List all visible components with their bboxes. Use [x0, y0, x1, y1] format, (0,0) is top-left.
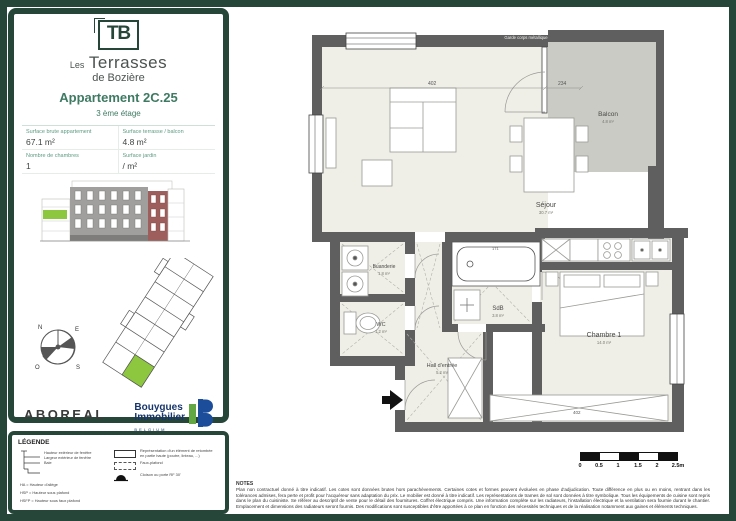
- field-value: / m²: [123, 161, 212, 171]
- legend-window-diagram: Hauteur extérieur de fenêtre Largeur ext…: [18, 449, 114, 488]
- highlighted-unit-elevation: [43, 210, 67, 219]
- window-sejour-top: [346, 33, 416, 49]
- room-area-buanderie: 1.8 m²: [378, 271, 390, 276]
- room-label-sejour: Séjour: [536, 202, 557, 209]
- scale-tick: 2: [655, 463, 658, 469]
- room-label-buanderie: Buanderie: [373, 264, 396, 270]
- scale-segment: [600, 453, 619, 460]
- room-label-sdb: SdB: [492, 306, 503, 312]
- plan-sheet: TB Les Terrasses de Bozière Appartement …: [0, 0, 736, 521]
- tv-board: [326, 118, 336, 168]
- coffee-table: [362, 160, 392, 186]
- brand-subtitle: de Bozière: [14, 72, 223, 84]
- wardrobe: [490, 395, 668, 421]
- room-label-wc: WC: [376, 322, 385, 328]
- legend-beam-label: Représentation d'un élément de retombée …: [140, 449, 214, 458]
- field-value: 4.8 m²: [123, 137, 212, 147]
- balcony-glass-door: [542, 47, 547, 113]
- bouygues-line2: Immobilier: [134, 413, 185, 423]
- brand-les: Les: [70, 60, 85, 70]
- bouygues-logo: Bouygues Immobilier BELGIUM: [134, 399, 215, 435]
- field-value: 1: [26, 161, 114, 171]
- room-label-hall: Hall d'entrée: [427, 363, 458, 369]
- field-label: Surface terrasse / balcon: [123, 129, 212, 135]
- room-area-hall: 5.2 m²: [436, 370, 448, 375]
- legend-abbr-hsp: HSP = Hauteur sous plafond: [20, 489, 80, 497]
- room-area-wc: 1.2 m²: [375, 329, 387, 334]
- dim-wardrobe-width: 402: [573, 410, 581, 415]
- false-ceiling-symbol: [114, 462, 136, 470]
- field-chambres: Nombre de chambres 1: [22, 150, 119, 174]
- mini-maps: N E S O: [14, 258, 223, 396]
- legend-fire-door-label: Cloison ou porte RF 30': [140, 473, 181, 478]
- scale-segment: [658, 453, 677, 460]
- sofa: [390, 88, 456, 152]
- compass-rose: N E S O: [32, 320, 84, 372]
- entry-arrow-icon: [382, 390, 403, 410]
- room-label-chambre1: Chambre 1: [587, 332, 622, 339]
- scale-segment: [639, 453, 658, 460]
- stove: [598, 239, 630, 261]
- scale-tick: 1: [616, 463, 619, 469]
- scale-segment: [619, 453, 638, 460]
- window-sejour-left: [309, 115, 323, 173]
- scale-bar: 0 0.5 1 1.5 2 2.5m: [578, 452, 698, 472]
- scale-tick: 2.5m: [672, 463, 685, 469]
- compass-s: S: [76, 365, 80, 371]
- notes-block: NOTES Plan non contractuel donné à titre…: [236, 481, 710, 509]
- brand-block: TB Les Terrasses de Bozière: [14, 20, 223, 84]
- apartment-title: Appartement 2C.25: [14, 90, 223, 105]
- legend-bay: Baie: [44, 461, 92, 466]
- scale-tick: 0: [578, 463, 581, 469]
- balcony-railing: [548, 30, 664, 42]
- field-value: 67.1 m²: [26, 137, 114, 147]
- scale-segment: [581, 453, 600, 460]
- field-jardin: Surface jardin / m²: [119, 150, 216, 174]
- bouygues-b-icon: [189, 399, 215, 427]
- legend: LÉGENDE Hauteur extérieur de fenêtre Lar…: [8, 431, 229, 514]
- dim-tub-width: 171: [492, 246, 499, 251]
- brand-terrasses: Terrasses: [89, 53, 167, 72]
- fire-door-icon: [114, 474, 128, 484]
- room-area-chambre1: 14.0 m²: [597, 340, 612, 345]
- brand-name: Les Terrasses: [14, 53, 223, 73]
- kitchen-counter: [542, 239, 670, 261]
- legend-abbr-hsfp: HSFP = Hauteur sous faux plafond: [20, 497, 80, 505]
- bed: [546, 272, 658, 336]
- info-panel: TB Les Terrasses de Bozière Appartement …: [8, 8, 229, 423]
- field-surface-terrasse: Surface terrasse / balcon 4.8 m²: [119, 126, 216, 150]
- logos-row: ABOREAL Bouygues Immobilier BELGIUM: [14, 397, 223, 433]
- surface-fields: Surface brute appartement 67.1 m² Surfac…: [22, 125, 215, 174]
- legend-abbr-ha: HA = Hauteur d'allège: [20, 481, 80, 489]
- window-dimension-icon: [18, 449, 44, 479]
- railing-label: Garde corps métallique: [504, 35, 548, 40]
- nightstand-left: [546, 272, 558, 286]
- dim-bay-width: 234: [558, 81, 567, 87]
- scale-tick: 0.5: [595, 463, 603, 469]
- room-area-sdb: 3.8 m²: [492, 313, 504, 318]
- room-area-sejour: 30.7 m²: [539, 210, 554, 215]
- room-area-balcon: 4.8 m²: [602, 119, 614, 124]
- field-surface-brute: Surface brute appartement 67.1 m²: [22, 126, 119, 150]
- room-label-balcon: Balcon: [598, 111, 618, 118]
- dim-sejour-width: 402: [428, 81, 437, 87]
- compass-n: N: [38, 325, 42, 331]
- field-label: Surface jardin: [123, 153, 212, 159]
- site-plan: [99, 258, 217, 396]
- legend-false-ceiling-label: Faux-plafond: [140, 461, 163, 466]
- field-label: Surface brute appartement: [26, 129, 114, 135]
- compass-o: O: [35, 365, 40, 371]
- tb-logo: TB: [98, 20, 139, 50]
- nightstand-right: [646, 272, 658, 286]
- field-label: Nombre de chambres: [26, 153, 114, 159]
- floor-plan: 402 234 171 402 Garde corps métallique S…: [236, 10, 706, 440]
- notes-body: Plan non contractuel donné à titre indic…: [236, 487, 710, 509]
- building-elevation: [14, 179, 223, 256]
- aboreal-logo: ABOREAL: [24, 407, 106, 422]
- legend-title: LÉGENDE: [18, 439, 219, 446]
- compass-e: E: [75, 327, 79, 333]
- scale-tick: 1.5: [634, 463, 642, 469]
- floor-label: 3 ème étage: [14, 109, 223, 118]
- beam-symbol: [114, 450, 136, 458]
